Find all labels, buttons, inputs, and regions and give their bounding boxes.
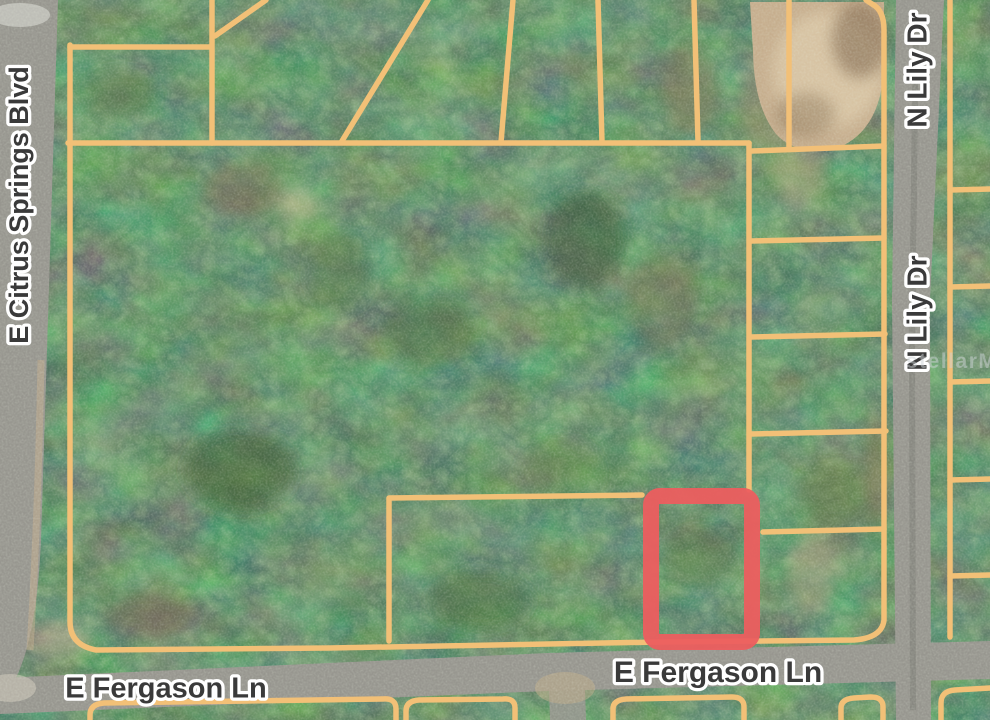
- parcel-line: [950, 381, 990, 382]
- parcel-line: [751, 238, 884, 241]
- street-label-e-fergason-ln-right: E Fergason Ln: [614, 656, 822, 689]
- parcel-line: [751, 334, 885, 337]
- parcel-line: [950, 575, 990, 576]
- parcel-map-canvas: E Citrus Springs Blvd N Lily Dr N Lily D…: [0, 0, 990, 720]
- watermark: stellarMLS: [906, 350, 990, 373]
- parcel-line: [763, 529, 884, 532]
- street-label-citrus-springs-blvd: E Citrus Springs Blvd: [4, 66, 34, 344]
- parcel-line: [950, 189, 990, 190]
- parcel-line: [950, 286, 990, 287]
- parcel-line: [751, 431, 886, 434]
- street-label-n-lily-dr-top: N Lily Dr: [901, 12, 932, 127]
- parcel-line: [950, 479, 990, 480]
- parcel-map: E Citrus Springs Blvd N Lily Dr N Lily D…: [0, 0, 990, 720]
- grain-overlay: [0, 0, 990, 720]
- street-label-e-fergason-ln-left: E Fergason Ln: [65, 673, 266, 705]
